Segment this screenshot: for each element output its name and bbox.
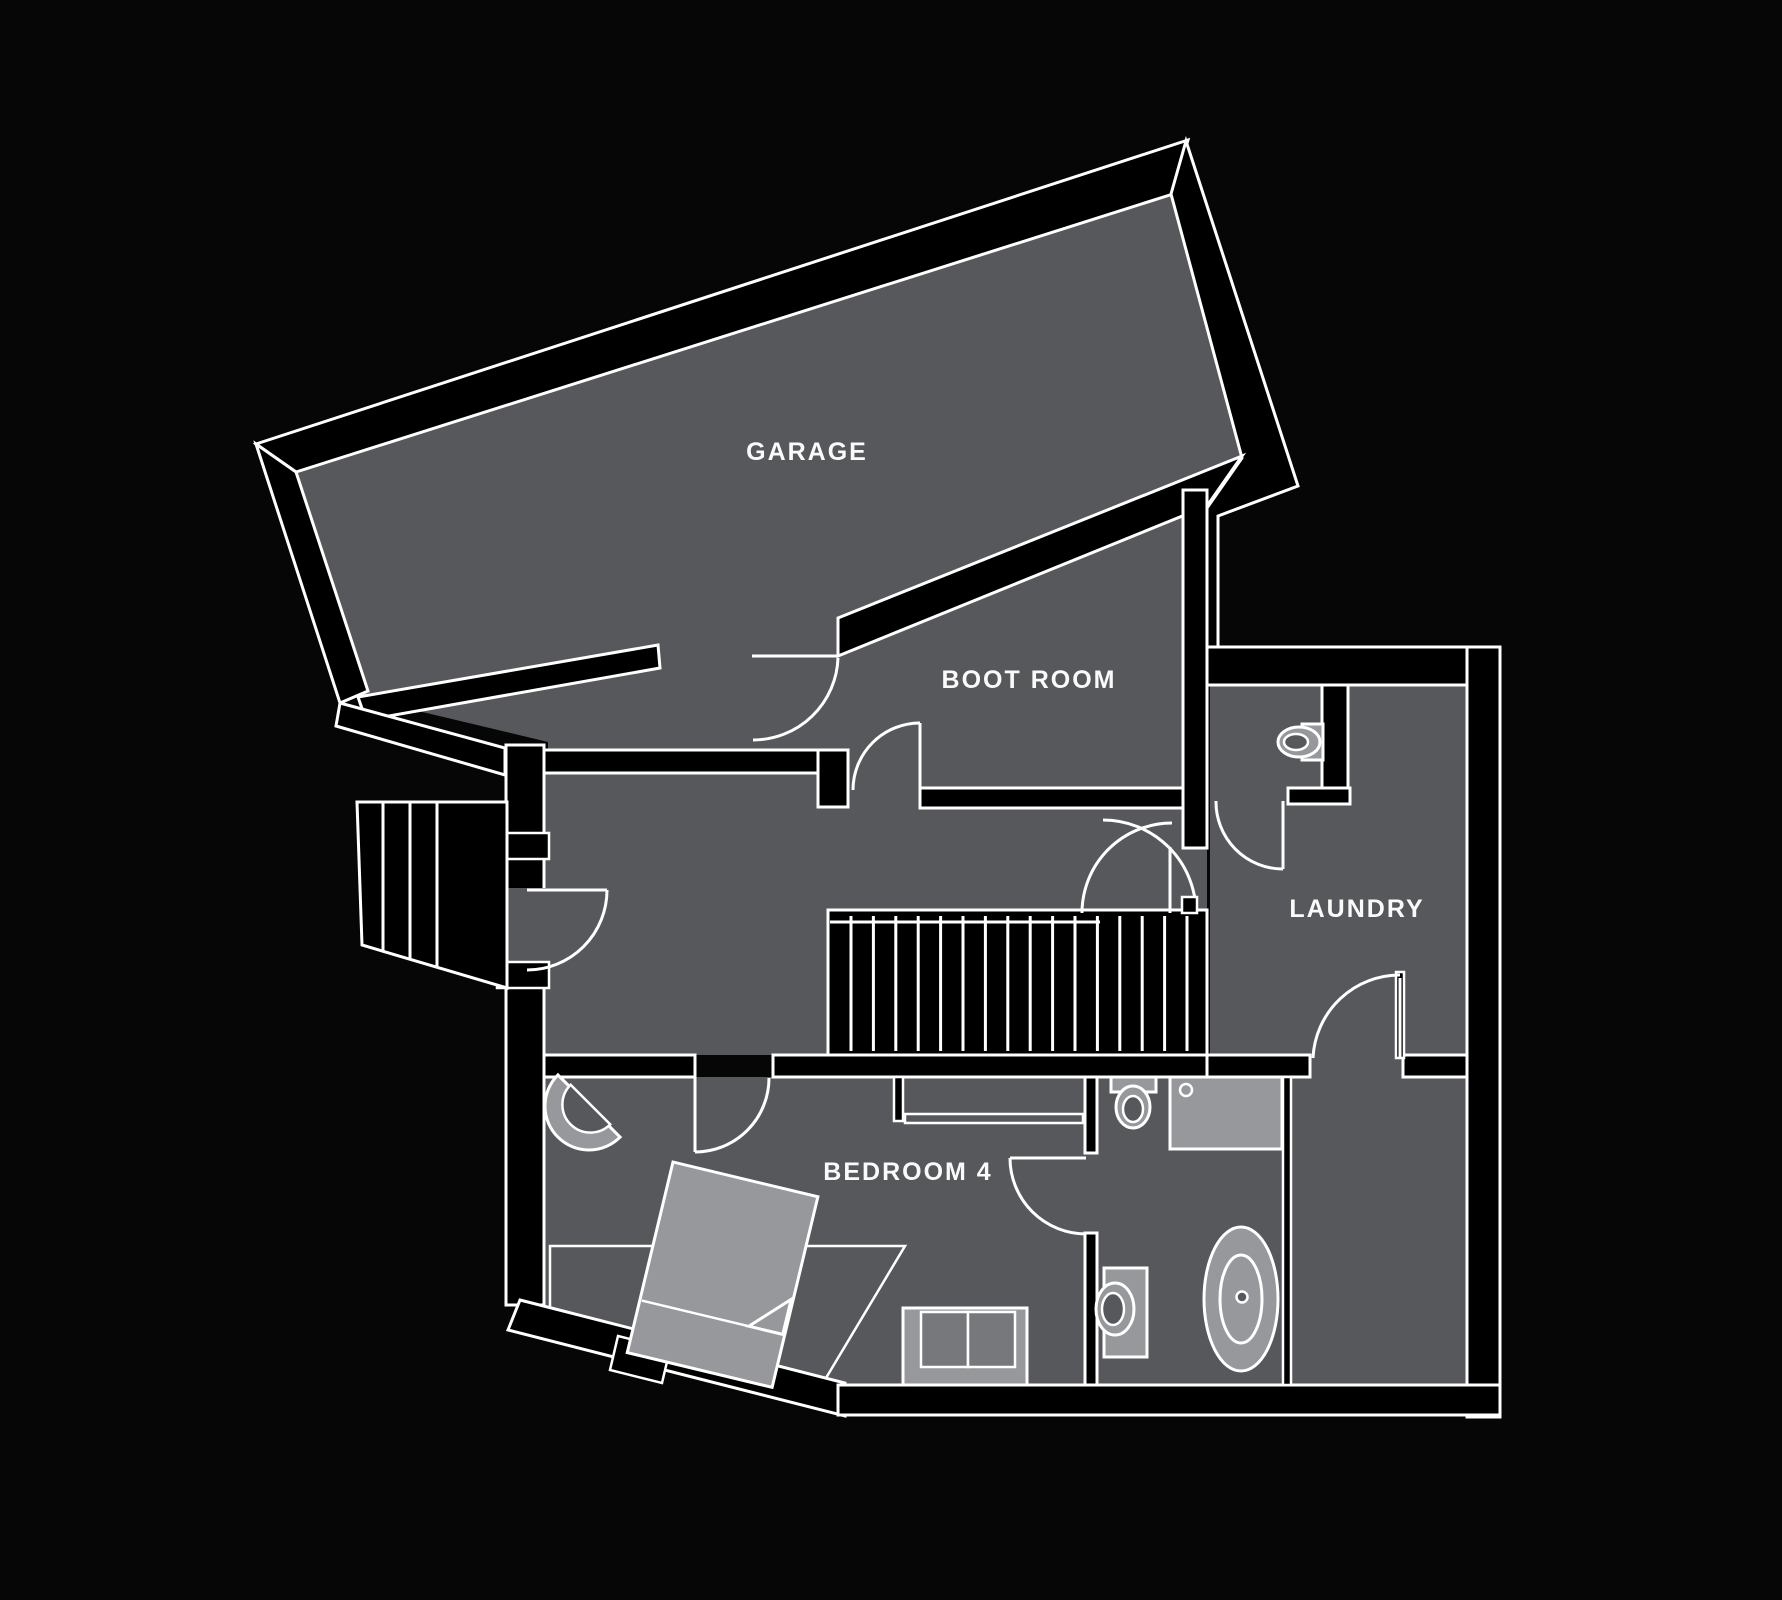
wall-bedroom-stub xyxy=(894,1077,903,1121)
wall-hall-top xyxy=(544,750,818,773)
wall-left-outer xyxy=(506,745,544,1305)
toilet-icon xyxy=(1278,724,1323,760)
wall-hall-top-step xyxy=(818,750,848,807)
bathtub-icon xyxy=(1204,1227,1278,1371)
wall-stairs-bottom-right xyxy=(773,1055,1207,1077)
wall-wc-partition-leg xyxy=(1288,788,1350,804)
wall-bottom xyxy=(838,1385,1500,1415)
wall-bed-bath-upper xyxy=(1085,1077,1097,1153)
wall-stairs-bottom-left xyxy=(544,1055,695,1077)
wall-right-outer xyxy=(1467,647,1500,1417)
outdoor-steps xyxy=(357,802,507,988)
shower-icon xyxy=(1170,1077,1282,1149)
wall-bath-right xyxy=(1283,1077,1291,1385)
floor-plan: GARAGE BOOT ROOM LAUNDRY BEDROOM 4 xyxy=(0,0,1782,1600)
staircase xyxy=(828,910,1207,1055)
wall-wc-partition xyxy=(1322,685,1348,790)
boot-room-label: BOOT ROOM xyxy=(942,666,1117,694)
wall-laundry-left-upper xyxy=(1183,490,1207,848)
garage-label: GARAGE xyxy=(746,438,868,466)
bedroom4-label: BEDROOM 4 xyxy=(823,1158,992,1186)
staircase-body xyxy=(828,910,1207,1055)
sofa-icon xyxy=(903,1308,1027,1385)
laundry-label: LAUNDRY xyxy=(1289,895,1424,923)
door-hall-jamb xyxy=(1182,897,1197,913)
wall-rightwing-top xyxy=(1207,647,1500,685)
toilet-icon xyxy=(1096,1268,1147,1357)
wall-laundry-bottom-right xyxy=(1403,1055,1467,1077)
wall-boot-bottom xyxy=(920,788,1183,808)
wall-laundry-bottom-left xyxy=(1207,1055,1310,1077)
